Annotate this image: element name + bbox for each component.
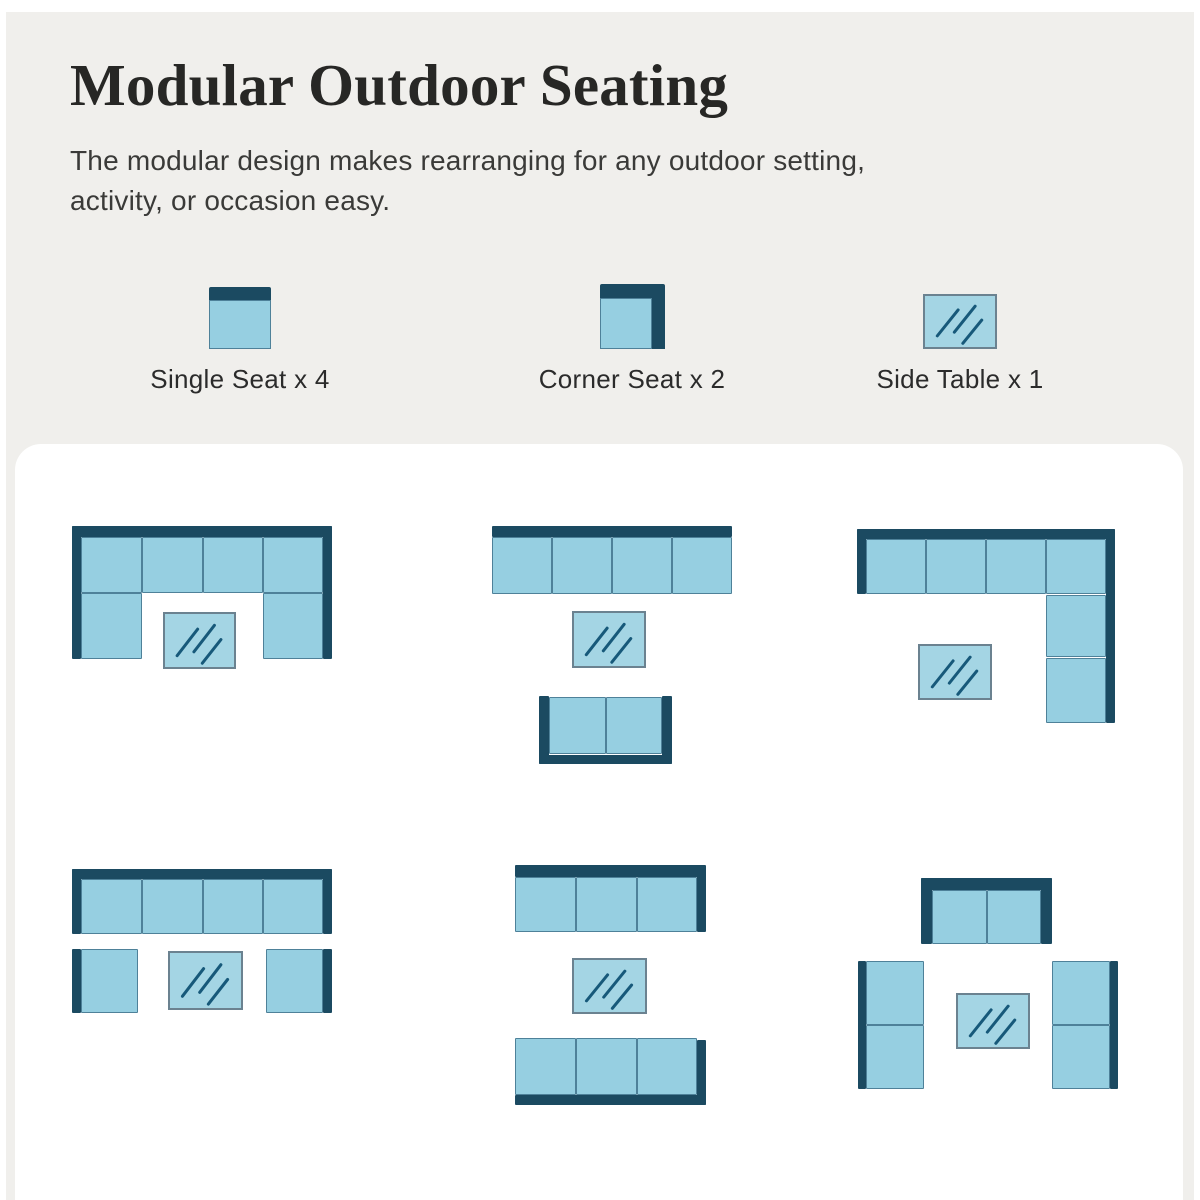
seat-cushion	[492, 537, 552, 594]
legend-label-side-table: Side Table x 1	[876, 364, 1043, 395]
seat-cushion	[637, 1038, 697, 1095]
seat-cushion	[266, 949, 323, 1013]
seat-cushion	[263, 537, 323, 593]
seat-cushion	[1046, 539, 1106, 594]
side-table	[918, 644, 992, 700]
legend-item-single-seat: Single Seat x 4	[105, 283, 375, 395]
page-title: Modular Outdoor Seating	[70, 52, 728, 118]
arrangement-u-shape-with-table	[72, 526, 332, 669]
seat-back-bar	[72, 869, 81, 934]
side-table	[163, 612, 236, 669]
legend-label-single-seat: Single Seat x 4	[150, 364, 329, 395]
seat-back-bar	[72, 526, 332, 537]
seat-backrest-shape	[209, 287, 271, 300]
corner-cushion-shape	[600, 298, 652, 349]
seat-back-bar	[921, 878, 932, 944]
seat-cushion	[672, 537, 732, 594]
seat-cushion	[81, 593, 142, 659]
seat-cushion	[81, 537, 142, 593]
seat-back-bar	[539, 755, 672, 764]
seat-back-bar	[662, 696, 672, 764]
seat-back-bar	[857, 529, 1115, 539]
single-seat-icon	[209, 283, 271, 349]
seat-back-bar	[857, 529, 866, 594]
seat-back-bar	[1106, 529, 1115, 723]
page-subtitle: The modular design makes rearranging for…	[70, 141, 865, 221]
seat-cushion	[515, 877, 576, 932]
subtitle-line-1: The modular design makes rearranging for…	[70, 145, 865, 176]
seat-back-bar	[492, 526, 732, 537]
seat-back-bar	[72, 869, 332, 879]
infographic-page: Modular Outdoor Seating The modular desi…	[0, 0, 1200, 1200]
seat-cushion	[866, 539, 926, 594]
seat-back-bar	[858, 961, 866, 1089]
seat-back-bar	[72, 526, 81, 659]
seat-cushion	[1052, 1025, 1110, 1089]
seat-cushion	[986, 539, 1046, 594]
seat-cushion	[1052, 961, 1110, 1025]
seat-back-bar	[697, 1040, 706, 1105]
side-table	[168, 951, 243, 1010]
arrangement-sofa-with-two-chairs	[72, 869, 332, 1014]
seat-back-bar	[323, 869, 332, 934]
seat-cushion	[866, 1025, 924, 1089]
seat-cushion	[515, 1038, 576, 1095]
seat-back-bar	[921, 878, 1052, 890]
side-table-icon	[923, 283, 997, 349]
seat-cushion	[203, 537, 263, 593]
arrangement-sofa-table-loveseat	[492, 526, 732, 764]
seat-cushion	[142, 537, 203, 593]
seat-cushion	[612, 537, 672, 594]
seat-cushion	[263, 593, 323, 659]
seat-cushion	[1046, 595, 1106, 657]
side-table	[572, 611, 646, 668]
seat-cushion	[637, 877, 697, 932]
legend-label-corner-seat: Corner Seat x 2	[539, 364, 726, 395]
seat-cushion	[549, 697, 606, 754]
arrangement-facing-rows-with-table	[515, 865, 706, 1105]
seat-cushion	[866, 961, 924, 1025]
seat-cushion	[932, 890, 987, 944]
seat-back-bar	[515, 1095, 706, 1105]
legend-item-side-table: Side Table x 1	[825, 283, 1095, 395]
seat-cushion	[987, 890, 1041, 944]
seat-back-bar	[323, 949, 332, 1013]
seat-cushion	[1046, 658, 1106, 723]
side-table	[572, 958, 647, 1014]
seat-back-bar	[697, 875, 706, 932]
seat-back-bar	[1041, 878, 1052, 944]
seat-back-bar	[515, 865, 706, 877]
arrangement-square-conversation-set	[858, 878, 1118, 1090]
seat-cushion	[576, 1038, 637, 1095]
side-table	[956, 993, 1030, 1049]
legend-item-corner-seat: Corner Seat x 2	[497, 283, 767, 395]
seat-cushion	[142, 879, 203, 934]
seat-back-bar	[72, 949, 81, 1013]
corner-backrest-top-shape	[600, 284, 665, 298]
seat-cushion	[203, 879, 263, 934]
seat-cushion	[576, 877, 637, 932]
seat-cushion	[263, 879, 323, 934]
seat-cushion	[552, 537, 612, 594]
seat-back-bar	[539, 696, 549, 764]
seat-cushion	[81, 879, 142, 934]
seat-back-bar	[1110, 961, 1118, 1089]
glass-shine-lines	[925, 296, 995, 347]
seat-cushion-shape	[209, 300, 271, 349]
arrangement-l-shape-with-table	[857, 529, 1115, 723]
seat-cushion	[926, 539, 986, 594]
subtitle-line-2: activity, or occasion easy.	[70, 185, 390, 216]
seat-cushion	[81, 949, 138, 1013]
seat-cushion	[606, 697, 662, 754]
corner-backrest-side-shape	[652, 298, 665, 349]
corner-seat-icon	[600, 283, 665, 349]
seat-back-bar	[323, 526, 332, 659]
